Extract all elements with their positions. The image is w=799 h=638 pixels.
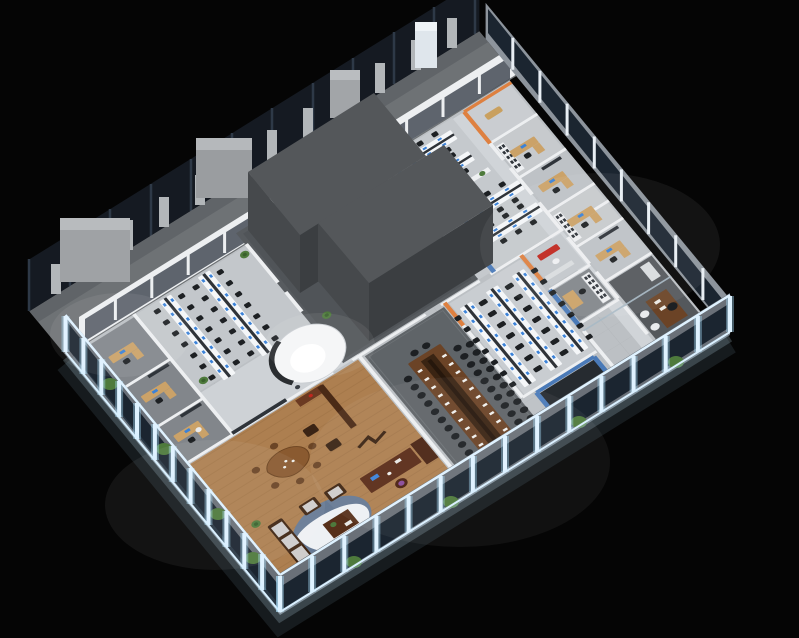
render-canvas: 3D isometric office floor plan rendering — [0, 0, 799, 638]
floorplan-render: 3D isometric office floor plan rendering — [0, 0, 799, 638]
